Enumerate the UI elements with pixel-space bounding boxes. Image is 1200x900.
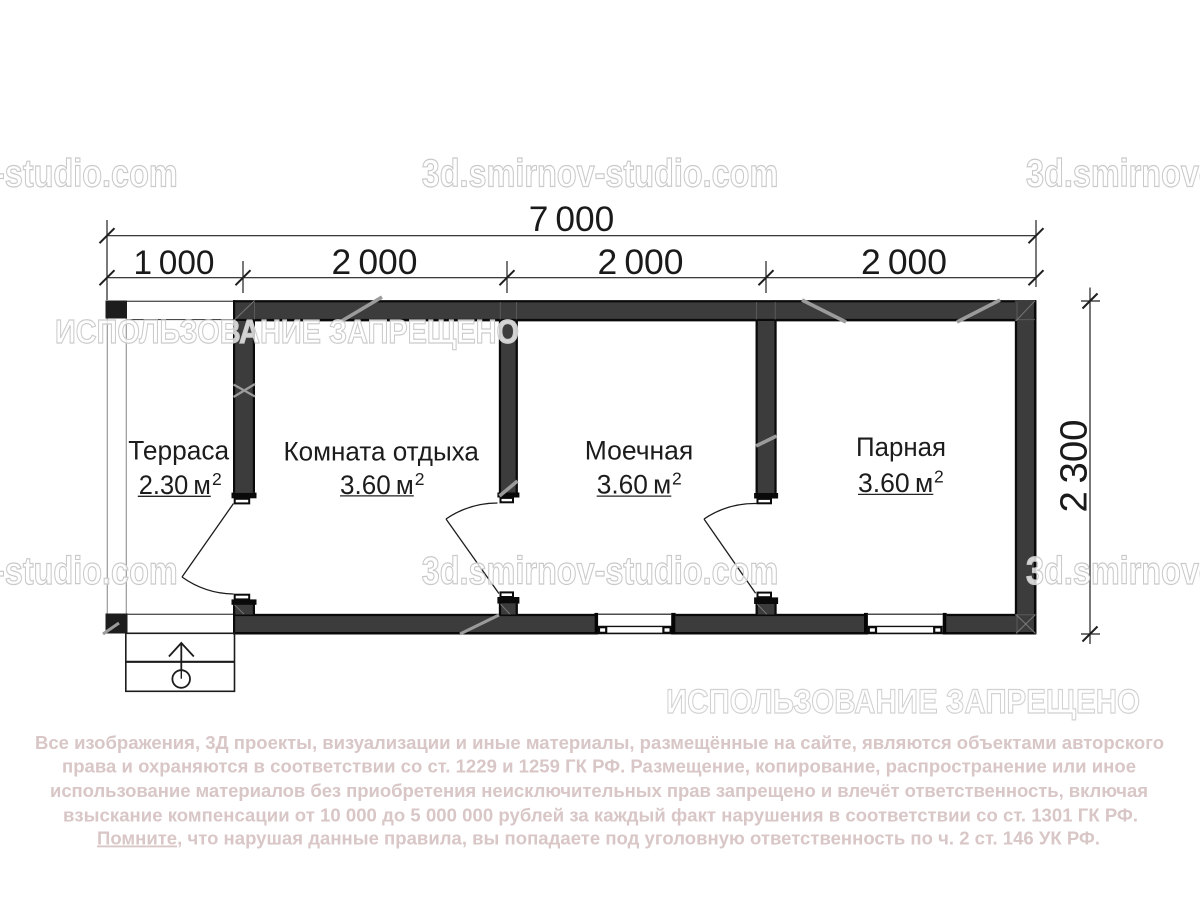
svg-text:Моечная: Моечная [585,435,694,465]
svg-text:3.60 м: 3.60 м [597,469,672,499]
svg-text:использование материалов без п: использование материалов без приобретени… [50,780,1148,801]
svg-text:2: 2 [672,468,682,488]
svg-text:ИСПОЛЬЗОВАНИЕ ЗАПРЕЩЕНО: ИСПОЛЬЗОВАНИЕ ЗАПРЕЩЕНО [666,683,1140,721]
svg-text:1 000: 1 000 [134,244,215,282]
svg-text:Все изображения, 3Д проекты, в: Все изображения, 3Д проекты, визуализаци… [35,732,1164,753]
svg-text:-studio.com: -studio.com [0,550,178,593]
svg-text:взыскание компенсации от 10 00: взыскание компенсации от 10 000 до 5 000… [63,805,1138,826]
svg-text:3d.smirnov-studio.com: 3d.smirnov-studio.com [1026,153,1200,196]
svg-text:2: 2 [934,467,944,487]
svg-text:Парная: Парная [856,432,946,462]
svg-text:3d.smirnov-studio.com: 3d.smirnov-studio.com [422,550,779,593]
svg-text:ИСПОЛЬЗОВАНИЕ ЗАПРЕЩЕНО: ИСПОЛЬЗОВАНИЕ ЗАПРЕЩЕНО [55,313,519,350]
svg-text:2 000: 2 000 [332,243,418,282]
svg-text:3.60 м: 3.60 м [858,468,933,498]
svg-text:Комната отдыха: Комната отдыха [283,436,479,466]
svg-text:Терраса: Терраса [128,435,229,465]
svg-text:7 000: 7 000 [529,199,615,239]
svg-text:2 000: 2 000 [861,243,947,282]
svg-text:2 000: 2 000 [598,243,684,282]
svg-text:-studio.com: -studio.com [0,153,178,196]
svg-text:2 300: 2 300 [1054,420,1096,513]
svg-text:3d.smirnov-studio.com: 3d.smirnov-studio.com [422,153,779,196]
svg-text:Помните, что нарушая данные пр: Помните, что нарушая данные правила, вы … [97,828,1100,849]
svg-text:права и охраняются в соответст: права и охраняются в соответствии со ст.… [62,756,1136,777]
svg-text:2: 2 [415,469,425,489]
svg-text:2: 2 [212,469,222,489]
svg-text:3d.smirnov-studio.com: 3d.smirnov-studio.com [1026,550,1200,593]
